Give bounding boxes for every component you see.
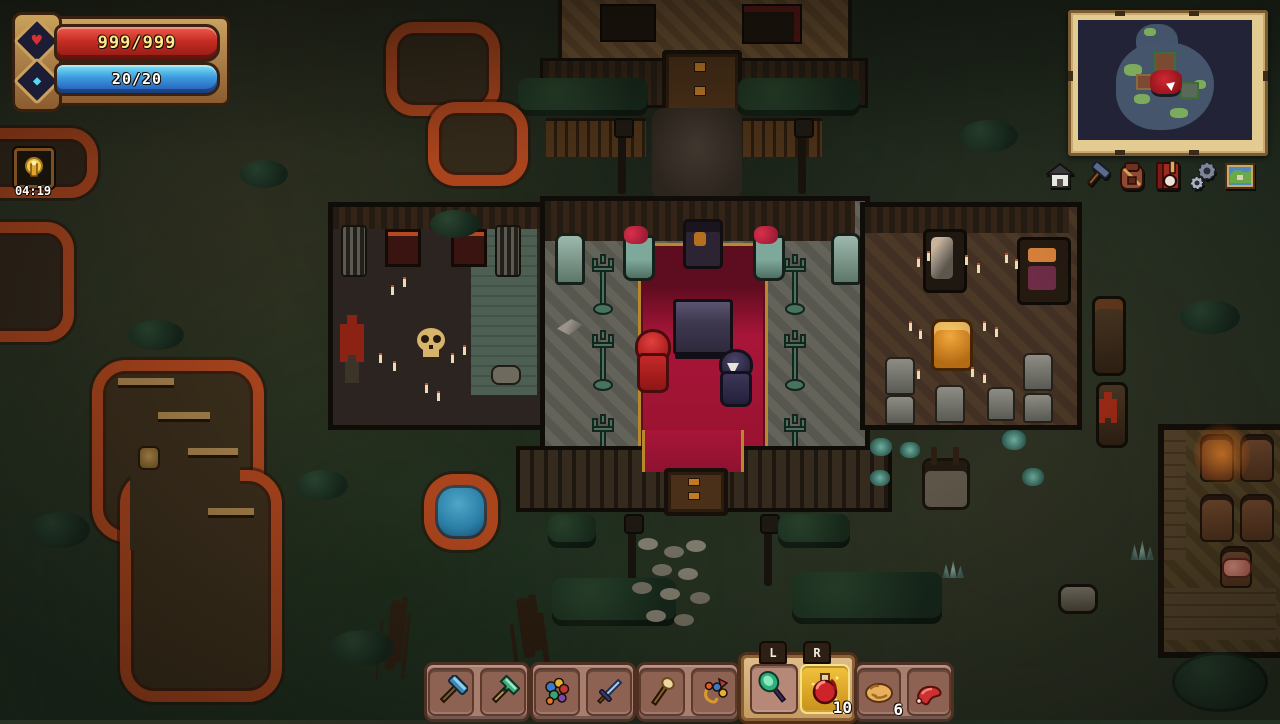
teal-flower-1 — [870, 438, 892, 456]
cellar-jar-3 — [1200, 494, 1234, 542]
courtyard-path — [652, 108, 742, 200]
menu-icon-row — [1044, 158, 1264, 196]
minimap-outpost-east — [1180, 82, 1199, 99]
fire-glow — [1194, 422, 1250, 486]
bread-icon — [862, 676, 896, 708]
npc-body — [720, 371, 752, 407]
map-icon[interactable] — [1224, 158, 1256, 194]
timer-widget: 04:19 — [14, 148, 54, 198]
field-terrace-1 — [118, 378, 174, 385]
hedge-south-2 — [778, 514, 850, 548]
torch-icon — [645, 675, 679, 709]
rock-pile — [491, 365, 521, 385]
player-body — [637, 353, 669, 393]
leaf-patch-left-edge-2 — [0, 222, 74, 342]
pulpit-chair[interactable] — [683, 219, 723, 269]
courtyard-table-right — [742, 4, 802, 44]
tree-south-left — [516, 597, 536, 658]
bush-6 — [1180, 300, 1240, 334]
hotbar-group-5: 6 — [854, 662, 954, 722]
settings-icon[interactable] — [1188, 158, 1220, 194]
hotbar-slot-blue-hammer[interactable] — [428, 668, 474, 716]
teal-flower-4 — [1002, 430, 1026, 450]
minimap[interactable] — [1068, 10, 1268, 156]
red-flowers-right — [754, 226, 778, 244]
minimap-church-area — [1150, 70, 1182, 94]
pulpit-seat — [694, 232, 706, 246]
timer-frame — [14, 148, 54, 188]
bush-8 — [330, 630, 394, 666]
courtyard-hedge-left — [518, 78, 648, 116]
hedge-south-4 — [792, 572, 942, 624]
broom — [557, 319, 583, 335]
gate-hinge-top — [694, 62, 706, 72]
npc-dark-robe[interactable] — [717, 349, 749, 407]
stone-path — [628, 536, 768, 636]
totem-1 — [1092, 296, 1126, 376]
backpack-icon[interactable] — [1116, 158, 1148, 194]
courtyard-table-left — [600, 4, 656, 42]
courtyard-gate[interactable] — [662, 50, 742, 116]
green-axe-icon — [486, 675, 520, 709]
courtyard-hedge-right — [738, 78, 860, 116]
hotbar-slot-green-axe[interactable] — [480, 668, 526, 716]
cellar-wall-left — [1164, 430, 1186, 560]
rock-south — [1058, 584, 1098, 614]
left-shoulder-tab[interactable]: L — [759, 641, 787, 664]
field-terrace-3 — [188, 448, 238, 455]
player-red-hood[interactable] — [633, 329, 667, 395]
candelabra-2 — [591, 329, 615, 391]
timer-value: 04:19 — [10, 184, 56, 198]
lantern-icon — [23, 156, 45, 180]
candelabra-1 — [591, 253, 615, 315]
bush-3 — [30, 512, 90, 548]
lamp-post-top-right — [798, 132, 806, 194]
mana-value: 20/20 — [112, 70, 162, 88]
minimap-viewport — [1078, 20, 1252, 140]
door-hinge-a — [688, 478, 700, 486]
candelabra-5 — [783, 329, 807, 391]
bread-count: 6 — [893, 700, 903, 719]
fishing-lure-icon — [697, 675, 731, 709]
east-room — [860, 202, 1082, 430]
bush-7 — [430, 210, 480, 238]
lamp-post-top-left — [618, 132, 626, 194]
right-tab-label: R — [813, 646, 820, 660]
blue-sword-icon — [592, 675, 626, 709]
hotbar-group-3 — [636, 662, 740, 722]
grass-tuft-1 — [1128, 540, 1154, 560]
totem-2 — [1096, 382, 1128, 448]
hedge-south-1 — [548, 514, 596, 548]
cellar-area — [1158, 424, 1280, 658]
urn-top-right — [831, 233, 861, 285]
gate-hinge-bottom — [694, 86, 706, 96]
urn-top-left — [555, 233, 585, 285]
hotbar-slot-red-potion[interactable]: 10 — [800, 664, 850, 714]
door-hinge-b — [688, 492, 700, 500]
teal-flower-2 — [900, 442, 920, 458]
well-posts — [931, 447, 937, 465]
cellar-wall-bottom — [1164, 588, 1276, 640]
journal-icon[interactable] — [1152, 158, 1184, 194]
teal-flower-5 — [1022, 468, 1044, 486]
red-flowers-left — [624, 226, 648, 244]
hotbar-group-1 — [424, 662, 530, 722]
field-sapling — [138, 446, 160, 470]
east-room-candles — [865, 207, 1077, 425]
raw-meat-icon — [912, 676, 946, 708]
hotbar-slot-green-shovel[interactable] — [750, 664, 798, 714]
bush-1 — [128, 320, 184, 350]
blue-hammer-icon — [434, 675, 468, 709]
minimap-green-3 — [1134, 94, 1150, 104]
minimap-green-4 — [1170, 108, 1188, 118]
gem-icon: ◆ — [33, 74, 41, 88]
hotbar-group-2 — [530, 662, 636, 722]
hotbar-slot-bread[interactable]: 6 — [857, 668, 901, 716]
hotbar-group-active: L R 10 — [738, 652, 858, 724]
bush-cellar-south — [1172, 652, 1268, 712]
totem-red-cross — [1104, 392, 1112, 418]
flower-pot-right — [753, 235, 785, 281]
flower-pot-left — [623, 235, 655, 281]
well[interactable] — [922, 458, 970, 510]
candelabra-4 — [783, 253, 807, 315]
minimap-green-2 — [1144, 28, 1156, 36]
green-shovel-icon — [756, 670, 792, 708]
coffin[interactable] — [673, 299, 733, 355]
cellar-jar-4 — [1240, 494, 1274, 542]
left-tab-label: L — [769, 646, 776, 660]
church-door[interactable] — [664, 468, 728, 516]
pig[interactable] — [1222, 558, 1252, 578]
game-screen: { "hud": { "health": { "display": "999/9… — [0, 0, 1280, 720]
hotbar-slot-fishing-lure[interactable] — [691, 668, 737, 716]
field-terrace-2 — [158, 412, 210, 419]
teal-flower-3 — [870, 470, 890, 486]
heart-icon: ♥ — [32, 33, 42, 50]
grass-tuft-2 — [940, 560, 964, 578]
ritual-room — [328, 202, 552, 430]
minimap-outpost-north — [1154, 52, 1176, 71]
dead-tree — [384, 600, 401, 671]
tools-icon[interactable] — [1080, 158, 1112, 194]
bush-2 — [240, 160, 288, 188]
bush-5 — [960, 120, 1018, 152]
flower-bundle-icon — [540, 675, 574, 709]
home-icon[interactable] — [1044, 158, 1076, 194]
health-bar: 999/999 — [54, 24, 220, 62]
hotbar-slot-blue-sword[interactable] — [586, 668, 632, 716]
potion-count: 10 — [833, 698, 852, 717]
ritual-candles — [333, 207, 547, 425]
hotbar-slot-torch[interactable] — [639, 668, 685, 716]
leaf-ring-b — [428, 102, 528, 186]
pond — [424, 474, 498, 550]
mana-bar: 20/20 — [54, 62, 220, 96]
bush-4 — [296, 470, 348, 500]
health-value: 999/999 — [98, 33, 177, 53]
carpet-door-spill — [642, 430, 744, 472]
hotbar-slot-flower-bundle[interactable] — [534, 668, 580, 716]
right-shoulder-tab[interactable]: R — [803, 641, 831, 664]
hotbar-slot-raw-meat[interactable] — [907, 668, 951, 716]
field-terrace-4 — [208, 508, 254, 515]
